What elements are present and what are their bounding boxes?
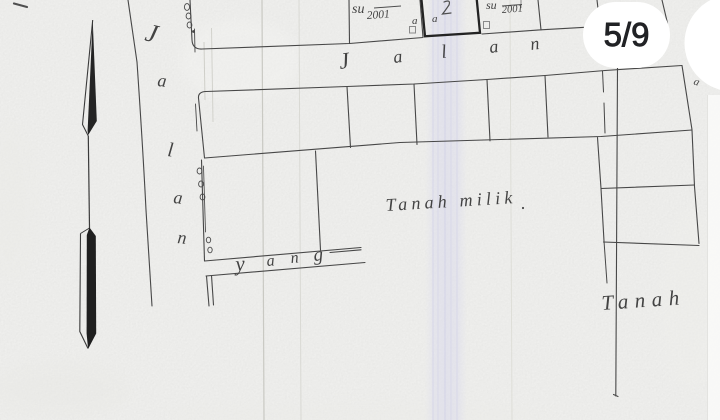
svg-text:a: a [266,252,275,270]
svg-text:2001: 2001 [366,8,390,22]
svg-text:a: a [432,13,438,25]
svg-text:n: n [290,249,299,267]
svg-text:5/9: 5/9 [604,16,650,53]
svg-text:su: su [352,2,364,17]
svg-text:g: g [313,244,324,266]
svg-text:su: su [486,0,497,12]
svg-text:2001: 2001 [501,4,523,16]
svg-text:a: a [412,15,418,27]
